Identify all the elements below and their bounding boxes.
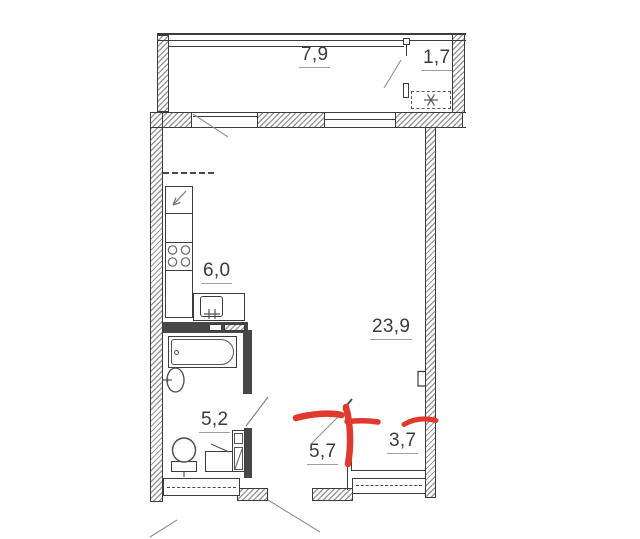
- ventilation-duct-right-axis: [356, 485, 422, 486]
- area-label-bathroom: 5,2: [199, 410, 230, 433]
- bathroom-wall-inset: [209, 324, 222, 331]
- balcony-frame-line: [168, 46, 404, 47]
- kitchen-zone-boundary: [163, 172, 214, 174]
- entrance-leader-line: [268, 500, 320, 532]
- facade-wall-bottom-edge: [150, 127, 466, 129]
- hallway-leader-line: [311, 414, 341, 444]
- bathroom-door-leaf: [246, 397, 268, 426]
- bathroom-right-wall-lower: [244, 428, 252, 478]
- area-label-hallway: 5,7: [307, 442, 338, 465]
- window-leader-line: [193, 114, 228, 137]
- kitchen-counter: [165, 186, 193, 318]
- balcony-door-threshold: [325, 119, 395, 120]
- corner-leader-line: [150, 520, 177, 537]
- bathroom-right-wall-upper: [243, 330, 252, 394]
- hallway-storage-partition: [347, 410, 348, 490]
- left-outer-wall: [150, 112, 163, 502]
- storage-cabinet-top: [234, 433, 243, 444]
- balcony-divider-line: [406, 45, 408, 56]
- floor-plan: 7,9 1,7 6,0 23,9 5,2 5,7 3,7: [0, 0, 640, 539]
- counter-divider: [165, 242, 193, 243]
- area-label-kitchen: 6,0: [201, 261, 232, 284]
- kitchen-sink: [200, 296, 223, 317]
- ventilation-duct-left-axis: [167, 487, 236, 488]
- storage-inner-edge: [351, 430, 352, 471]
- washing-machine: [205, 451, 233, 472]
- balcony-leader-line: [384, 60, 401, 88]
- right-outer-wall: [425, 127, 436, 498]
- balcony-divider-post-top: [403, 38, 410, 45]
- pencil-tick-mark: [343, 399, 352, 410]
- area-label-balcony: 7,9: [299, 45, 330, 68]
- area-label-storage: 3,7: [387, 431, 418, 454]
- balcony-glazing-inner-line: [157, 40, 466, 41]
- counter-divider: [165, 270, 193, 271]
- area-label-balcony-section: 1,7: [421, 48, 452, 71]
- bottom-wall-left-pier: [237, 488, 268, 501]
- ventilation-duct-right: [352, 478, 426, 494]
- red-stroke-right-arm: [347, 421, 378, 422]
- balcony-right-wall: [452, 33, 465, 113]
- balcony-divider-post-bottom: [403, 83, 409, 98]
- bathtub-inner: [171, 339, 234, 365]
- toilet-tank: [171, 461, 197, 472]
- storage-cabinet-bottom: [234, 447, 243, 470]
- bathroom-wall-duct-inset: [224, 324, 245, 331]
- area-label-living-room: 23,9: [370, 317, 412, 340]
- air-conditioner-zone: [411, 91, 451, 109]
- red-stroke-left-arm: [296, 414, 342, 418]
- storage-floor-edge: [351, 470, 426, 471]
- counter-divider: [165, 213, 193, 214]
- washbasin-faucet-icon: [163, 376, 172, 385]
- balcony-glazing-outer-line: [157, 33, 466, 35]
- washbasin-icon: [167, 368, 184, 392]
- facade-wall-top-edge: [150, 112, 466, 113]
- kitchen-window: [193, 116, 257, 118]
- wall-niche-mark: [418, 372, 425, 387]
- toilet-icon: [173, 438, 196, 462]
